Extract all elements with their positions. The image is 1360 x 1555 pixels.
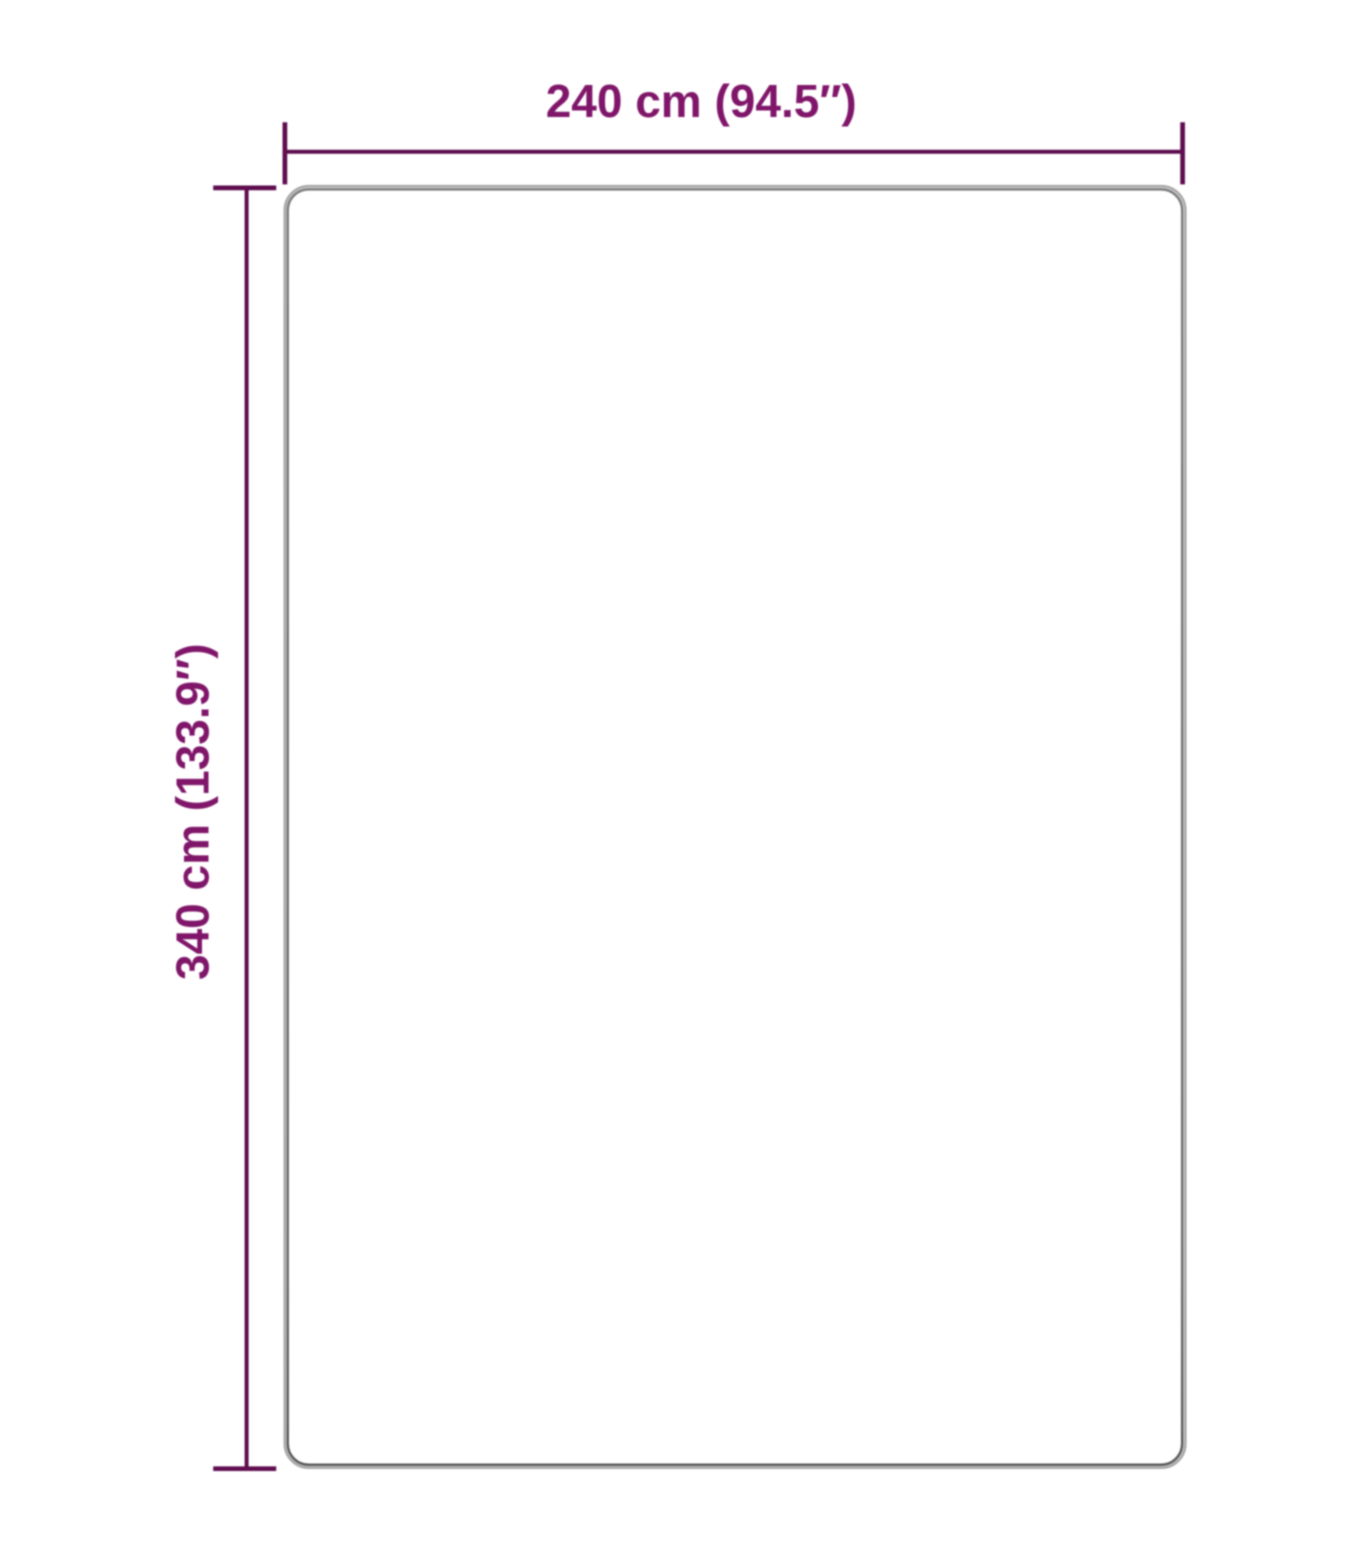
svg-text:240 cm (94.5″): 240 cm (94.5″) [546,75,857,127]
svg-text:340 cm (133.9″): 340 cm (133.9″) [167,643,219,980]
